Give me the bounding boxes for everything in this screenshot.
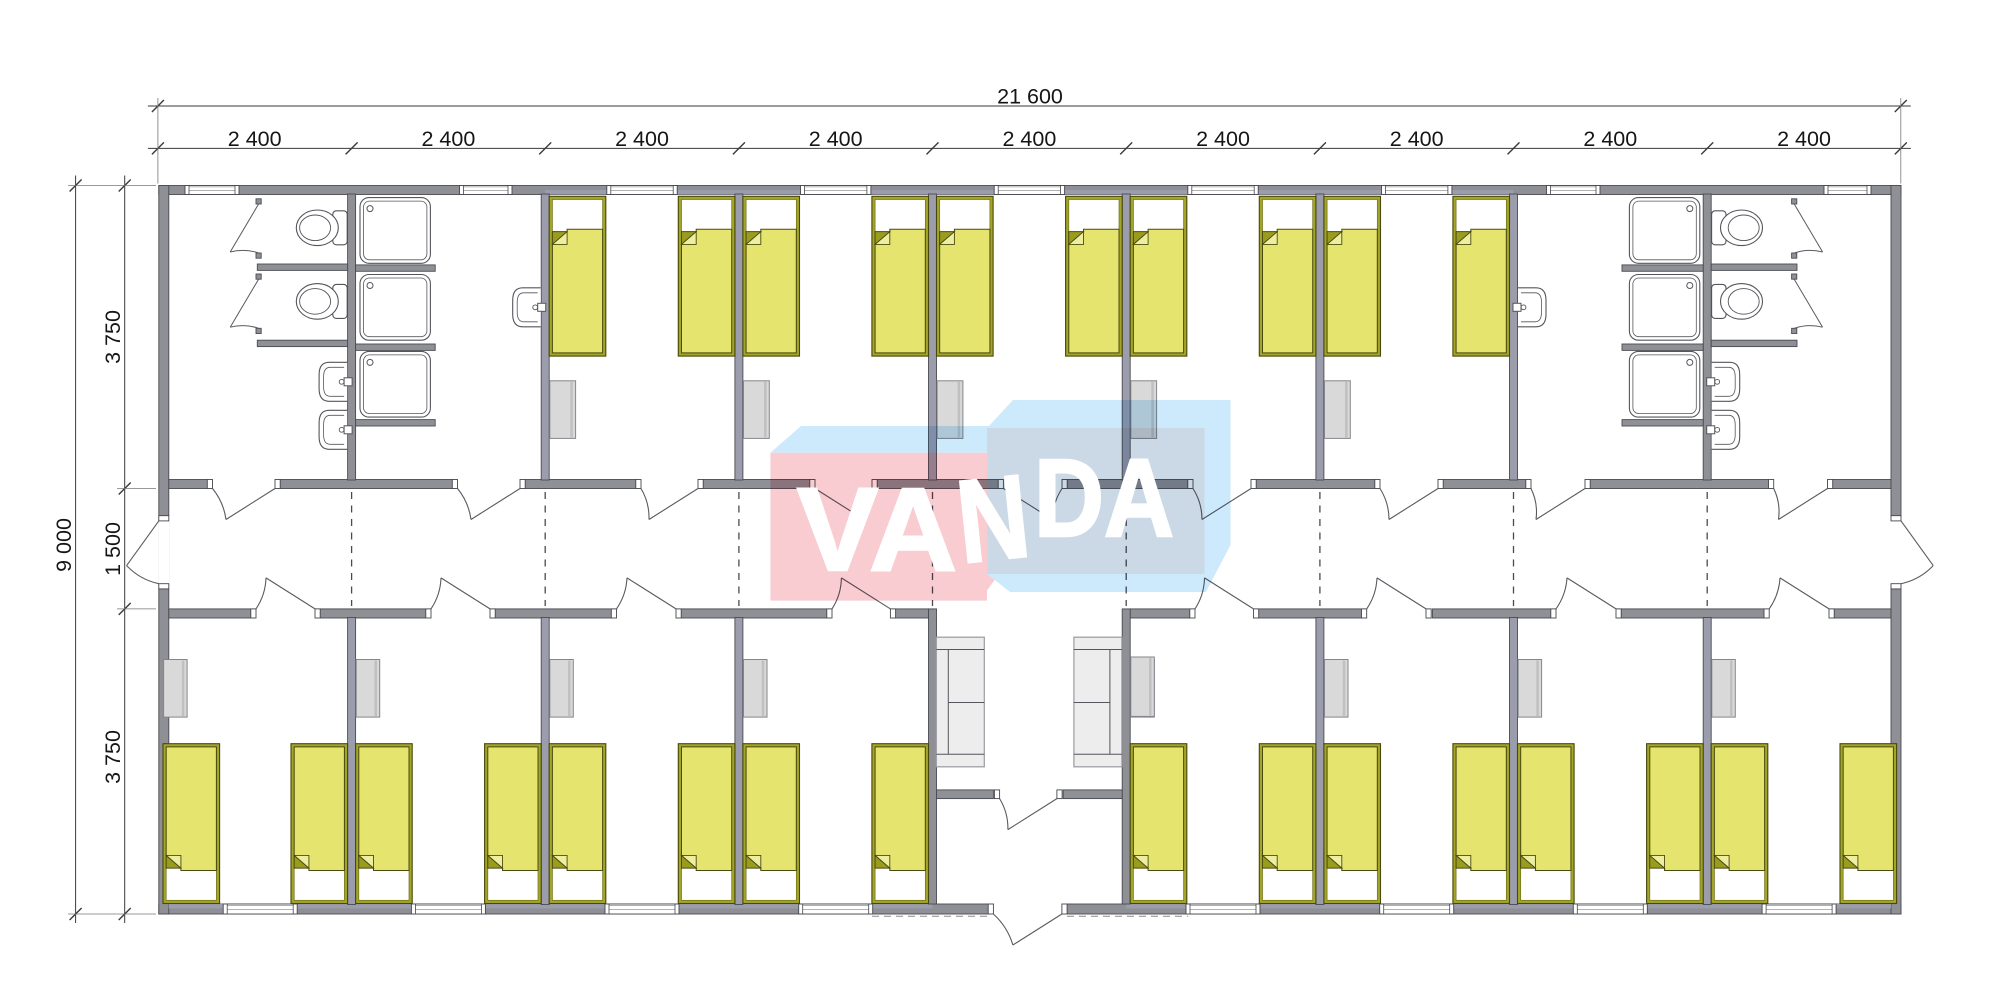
- svg-text:N: N: [951, 450, 1035, 589]
- svg-text:2 400: 2 400: [228, 127, 282, 151]
- svg-text:3 750: 3 750: [101, 730, 125, 784]
- svg-text:VA: VA: [797, 464, 957, 596]
- svg-text:DA: DA: [1034, 437, 1174, 560]
- svg-text:9 000: 9 000: [52, 518, 76, 572]
- svg-text:2 400: 2 400: [1002, 127, 1056, 151]
- svg-text:2 400: 2 400: [421, 127, 475, 151]
- svg-text:3 750: 3 750: [101, 310, 125, 364]
- svg-text:2 400: 2 400: [1777, 127, 1831, 151]
- svg-text:21 600: 21 600: [997, 85, 1063, 109]
- svg-text:2 400: 2 400: [809, 127, 863, 151]
- svg-text:2 400: 2 400: [615, 127, 669, 151]
- svg-text:2 400: 2 400: [1196, 127, 1250, 151]
- svg-text:1 500: 1 500: [101, 522, 125, 576]
- svg-text:2 400: 2 400: [1390, 127, 1444, 151]
- svg-text:2 400: 2 400: [1583, 127, 1637, 151]
